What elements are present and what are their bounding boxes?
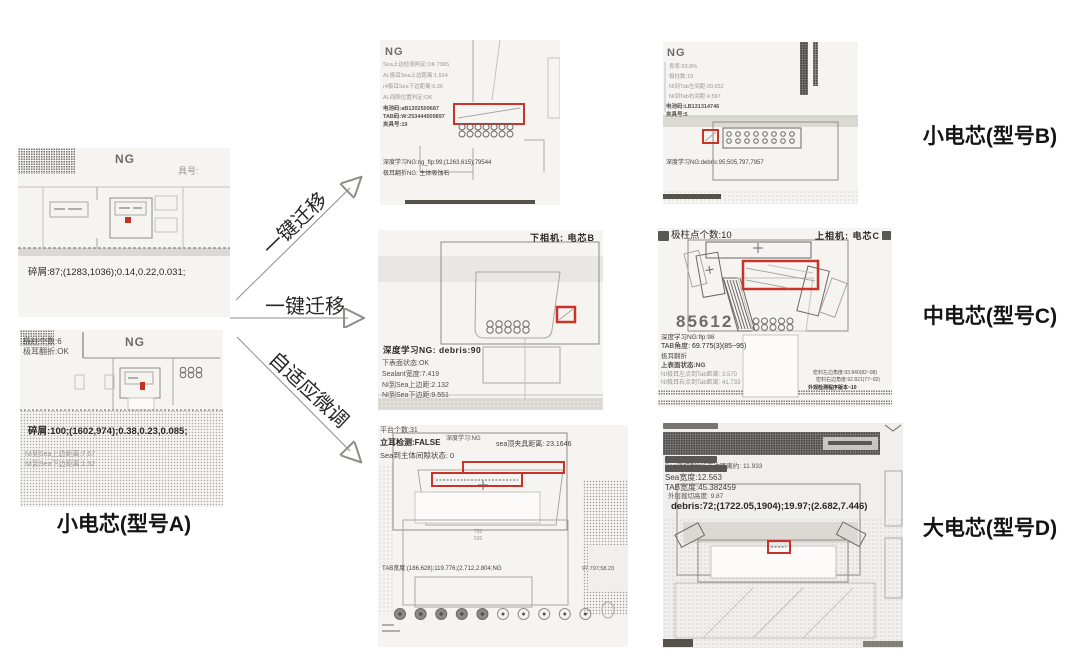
b2-info4-text: NI到Tab右间距:4.597 (669, 94, 721, 100)
b1-code3-text: 夹具号:19 (383, 122, 407, 128)
a2-result-text: 碎屑:100;(1602,974);0.38,0.23,0.085; (28, 427, 188, 438)
label-model-a: 小电芯(型号A) (24, 508, 224, 538)
b2-info1-text: 良率:93.8% (669, 64, 697, 70)
d1-line2b-text: 深度学习:NG (446, 436, 481, 443)
d2-line2-text: Sea宽度:12.563 (665, 473, 722, 482)
c2-line2-text: TAB角度: 69.775(3)(85~95) (661, 343, 746, 351)
c2-small2-text: 密封右边角度:92.821(77~92) (816, 378, 880, 384)
b2-info2-text: 极柱数:19 (669, 74, 693, 80)
inspection-image-b2: NG 良率:93.8% 极柱数:19 NI到Tab左间距:20.652 NI到T… (663, 42, 858, 204)
b1-code1-text: 电池码:aB1302509687 (383, 106, 439, 112)
inspection-image-c2: 极柱点个数:10 上相机: 电芯C 85612 深度学习NG:flp:98 TA… (658, 228, 892, 407)
inspection-image-d2: Sea底切到965下边距离约: 11.933 Sea宽度:12.563 TAB宽… (663, 423, 903, 648)
d2-line1-text: Sea底切到965下边距离约: 11.933 (665, 463, 762, 470)
b2-ng-text: NG (667, 47, 686, 60)
a2-sketch (20, 330, 223, 507)
c1-line2-text: Sealant宽度:7.419 (382, 371, 439, 379)
d1-mid2-text: 97.797;58.23 (582, 566, 614, 572)
label-model-c: 中电芯(型号C) (905, 300, 1075, 330)
d1-num1-text: 752 (474, 530, 482, 536)
d2-sketch (663, 423, 903, 648)
c2-camera-text: 上相机: 电芯C (815, 231, 880, 241)
b1-info4-text: AL间隙位置判定:OK (383, 95, 432, 101)
d1-mid1-text: TAB宽度:(186,628);119.776;(2.712,2.804;NG (382, 566, 502, 573)
b2-code2-text: 夹具号:5 (666, 112, 687, 118)
b2-result1-text: 深度学习NG:debris:95;505,797,7957 (666, 160, 764, 167)
c2-small1-text: 密封左边角度:93.840(82~98) (813, 371, 877, 377)
arrow-label-mid: 一键迁移 (250, 290, 360, 319)
c1-camera-text: 下相机: 电芯B (530, 233, 595, 243)
label-model-d: 大电芯(型号D) (905, 512, 1075, 542)
inspection-image-b1: NG Sea上边检测判定:OK 7965 AL极耳Sea上边距离:1.914 r… (380, 40, 560, 205)
d1-line1-text: 平台个数:31 (380, 427, 418, 435)
d1-line2a-text: 立耳检测:FALSE (380, 438, 440, 447)
a1-tag-text: 具号: (178, 166, 199, 176)
arrow-label-top: 一键迁移 (236, 166, 351, 279)
inspection-image-a2: NG 极柱个数:6 极耳翻折:OK 碎屑:100;(1602,974);0.38… (20, 330, 223, 507)
d2-result-text: debris:72;(1722.05,1904);19.97;(2.682,7.… (671, 502, 867, 513)
b2-code1-text: 电池码:LB131314746 (666, 104, 719, 110)
arrow-label-bottom: 自适应微调 (249, 330, 371, 447)
c2-bignum-text: 85612 (676, 312, 733, 332)
inspection-image-d1: 平台个数:31 立耳检测:FALSE 深度学习:NG sea顶夹具距离: 23.… (378, 425, 628, 647)
c1-line3-text: NI到Sea上边距:2.132 (382, 382, 449, 390)
label-model-b: 小电芯(型号B) (905, 120, 1075, 150)
b1-code2-text: TAB码:W:253444509897 (383, 114, 445, 120)
c2-line3-text: 极耳翻折 (661, 353, 687, 360)
a2-sub2-text: NI到Sea下边距离:1.52 (25, 461, 95, 469)
c2-line4-text: 上表面状态:NG (661, 362, 705, 369)
a1-ng-text: NG (115, 153, 135, 167)
a2-ng-text: NG (125, 336, 145, 350)
b1-result1-text: 深度学习NG:ng_flp:99;(1263,615);79544 (383, 160, 491, 167)
c2-small3-text: 外观检测程序版本~10 (808, 386, 856, 392)
d2-line3-text: TAB宽度:45.382459 (665, 483, 736, 492)
d1-line2c-text: sea顶夹具距离: 23.1646 (496, 441, 571, 449)
b1-info2-text: AL极耳Sea上边距离:1.914 (383, 73, 448, 79)
b2-info3-text: NI到Tab左间距:20.652 (669, 84, 724, 90)
d1-num2-text: 520 (474, 537, 482, 543)
b1-ng-text: NG (385, 46, 404, 59)
a1-result-text: 碎屑:87;(1283,1036);0.14,0.22,0.031; (28, 268, 185, 279)
a2-sub1-text: NI到Sea上边距离:7.67 (25, 451, 95, 459)
inspection-image-a1: NG 具号: 碎屑:87;(1283,1036);0.14,0.22,0.031… (18, 148, 230, 317)
inspection-image-c1: 下相机: 电芯B 深度学习NG: debris:90 下表面状态:OK Seal… (378, 230, 603, 410)
c2-line1-text: 深度学习NG:flp:98 (661, 334, 714, 341)
c2-top-text: 极柱点个数:10 (671, 231, 732, 242)
b1-info3-text: r4极耳Sea下边距离:6.36 (383, 84, 443, 90)
c2-line6-text: NI极耳右点到Tab距离: 41.733 (661, 380, 740, 387)
a2-info1-text: 极柱个数:6 (23, 337, 62, 346)
c2-line5-text: NI极耳左点到Tab距离: 3.570 (661, 372, 737, 379)
d2-line4-text: 外层裁切高度: 9.87 (668, 493, 723, 500)
c1-line1-text: 下表面状态:OK (382, 360, 429, 368)
c1-line4-text: NI到Sea下边距:9.551 (382, 392, 449, 400)
figure-canvas: 一键迁移 一键迁移 自适应微调 小电芯(型号A) 小电芯(型号B) 中电芯(型号… (0, 0, 1080, 666)
b1-result2-text: 极耳翻折NG: 主体吸蚀右 (383, 171, 449, 178)
c1-result-text: 深度学习NG: debris:90 (383, 346, 481, 356)
a2-info2-text: 极耳翻折:OK (23, 347, 69, 356)
d1-line3-text: Sea到主体间隙状态: 0 (380, 452, 454, 461)
b1-info1-text: Sea上边检测判定:OK 7965 (383, 62, 449, 68)
